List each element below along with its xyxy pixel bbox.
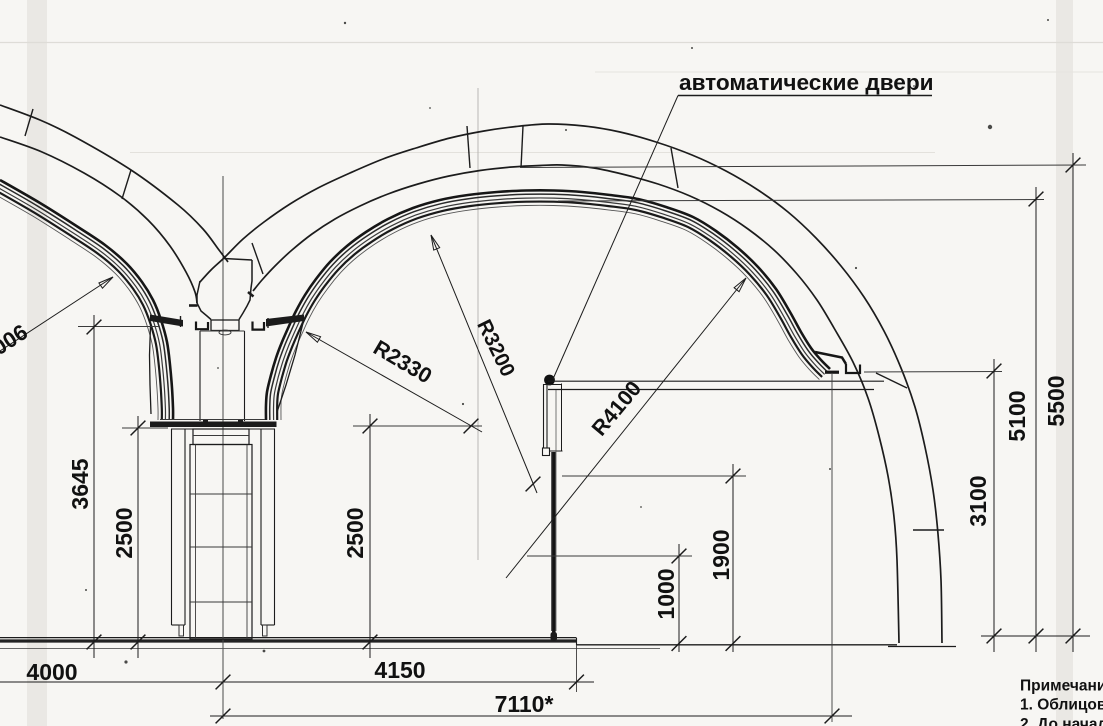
svg-text:7110*: 7110* [495, 691, 554, 717]
svg-text:1000: 1000 [653, 568, 679, 619]
svg-text:4150: 4150 [374, 657, 425, 683]
svg-text:4000: 4000 [26, 659, 77, 685]
svg-text:2. До начала монт.: 2. До начала монт. [1020, 716, 1103, 726]
svg-text:3645: 3645 [67, 458, 93, 509]
svg-text:5100: 5100 [1004, 390, 1030, 441]
svg-text:2500: 2500 [111, 507, 137, 558]
svg-text:2500: 2500 [342, 507, 368, 558]
svg-text:автоматические двери: автоматические двери [679, 70, 934, 95]
svg-text:Примечания: Примечания [1020, 678, 1103, 695]
svg-text:5500: 5500 [1043, 375, 1069, 426]
svg-text:1900: 1900 [708, 529, 734, 580]
svg-text:1. Облицовка арок: 1. Облицовка арок [1020, 697, 1103, 714]
svg-text:3100: 3100 [965, 475, 991, 526]
